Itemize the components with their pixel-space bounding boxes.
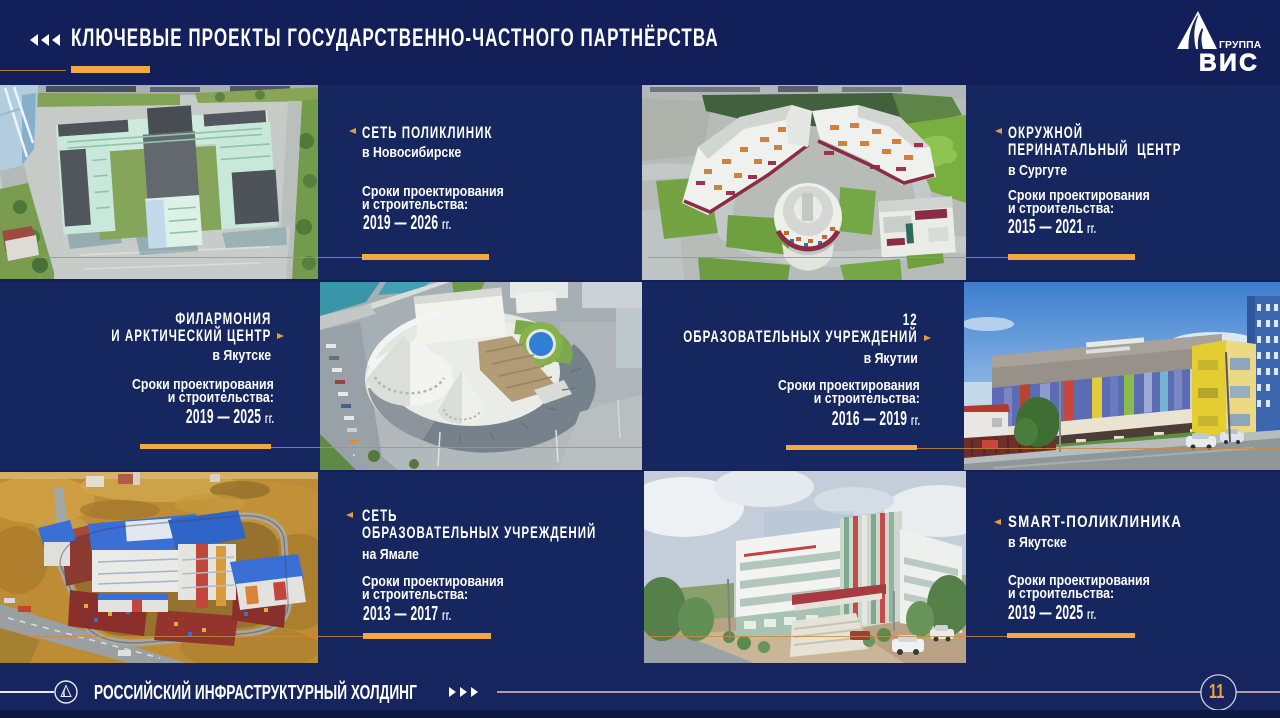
svg-text:ВИС: ВИС [1199, 50, 1259, 73]
